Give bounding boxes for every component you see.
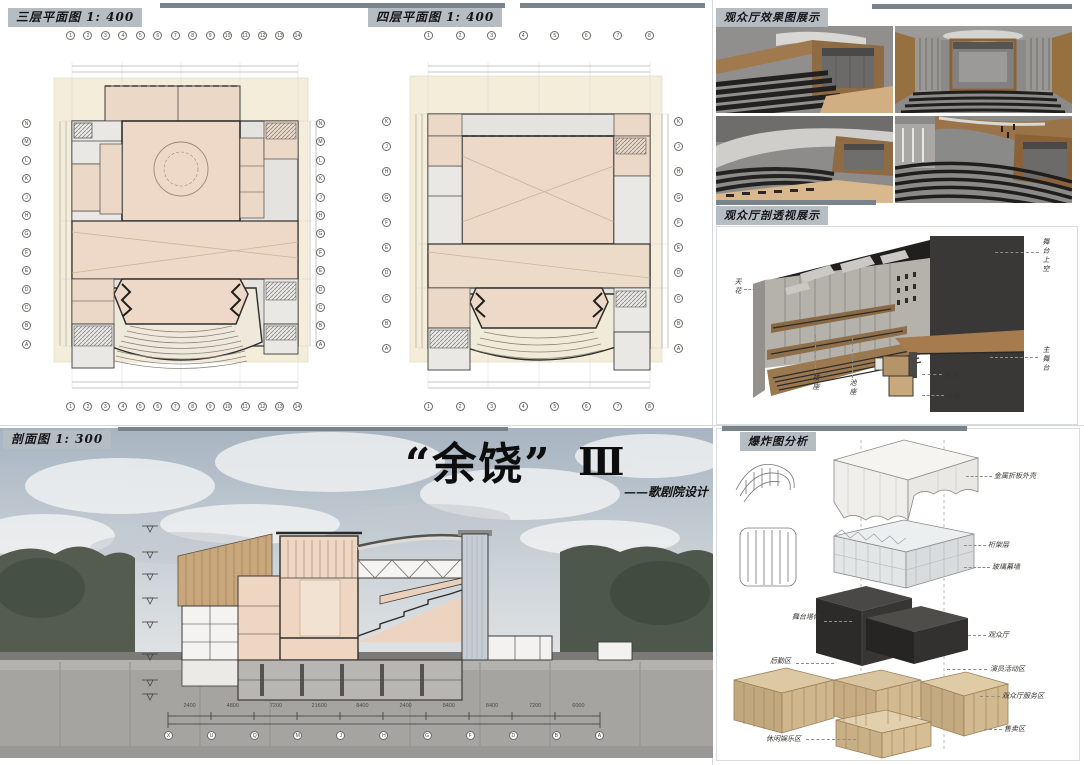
grid-bubble: 3 [101, 402, 110, 411]
grid-bubble: C [22, 303, 31, 312]
exploded-label-sales-area: 售卖区 [1004, 724, 1025, 734]
grid-bubble: 1 [66, 31, 75, 40]
leader [852, 338, 853, 378]
shell-sketch [736, 464, 794, 502]
grid-bubble: 11 [241, 402, 250, 411]
grid-bubble: G [22, 229, 31, 238]
grid-bubble: C [382, 294, 391, 303]
grid-bubble: 4 [519, 31, 528, 40]
grid-bubble: B [22, 321, 31, 330]
dimension-value: 8400 [341, 703, 384, 709]
east-annex [488, 636, 552, 660]
section-grid-letters: XUQMJHGFDBA [164, 731, 604, 740]
grid-bubble: 14 [293, 402, 302, 411]
leader [984, 729, 1002, 730]
grid-bubble: 7 [171, 402, 180, 411]
grid-bubble: Q [250, 731, 259, 740]
project-title-block: “余饶” Ⅲ ——歌剧院设计 [405, 428, 710, 502]
grid-bubble: U [207, 731, 216, 740]
grid-bubble: L [316, 156, 325, 165]
fourth-floor-plan-drawing [368, 26, 708, 424]
grid-bubble: 3 [487, 402, 496, 411]
grid-bubble: 13 [275, 402, 284, 411]
leader [922, 395, 944, 396]
plan4-axis-top: 12345678 [424, 31, 654, 40]
grid-bubble: H [316, 211, 325, 220]
section-title: 剖面图 1: 300 [3, 430, 111, 449]
grid-bubble: 1 [66, 402, 75, 411]
plan3-stage [122, 121, 240, 221]
grid-bubble: 6 [153, 31, 162, 40]
plan4-axis-left: KJHGFEDCBA [382, 117, 391, 353]
grid-bubble: D [674, 268, 683, 277]
grid-bubble: B [552, 731, 561, 740]
grid-bubble: D [382, 268, 391, 277]
grid-bubble: B [674, 319, 683, 328]
roof-truss [358, 560, 462, 578]
exploded-header-bar [722, 426, 967, 431]
grid-bubble: F [466, 731, 475, 740]
grid-bubble: 8 [645, 402, 654, 411]
render-view-side [716, 26, 893, 113]
leader [744, 289, 760, 290]
grid-bubble: 14 [293, 31, 302, 40]
grid-bubble: G [316, 229, 325, 238]
grid-bubble: M [22, 137, 31, 146]
grid-bubble: 2 [456, 402, 465, 411]
grid-bubble: 2 [83, 402, 92, 411]
exploded-label-stage-tower: 舞台塔体 [792, 612, 820, 622]
mid-block [238, 576, 280, 660]
plan4-title: 四层平面图 1: 400 [368, 8, 502, 27]
leader [995, 252, 1039, 253]
grid-bubble: D [22, 285, 31, 294]
grid-bubble: 5 [550, 402, 559, 411]
pit-step [875, 358, 883, 370]
persp-label-fly-space: 舞台上空 [1041, 238, 1051, 274]
grid-bubble: 1 [424, 31, 433, 40]
exploded-label-auditorium: 观众厅 [988, 630, 1009, 640]
grid-bubble: 3 [487, 31, 496, 40]
dark-theatre-volume [816, 586, 968, 666]
dimension-value: 6000 [557, 703, 600, 709]
grid-bubble: A [595, 731, 604, 740]
plan4-left-sliver [428, 136, 462, 244]
leader [947, 669, 987, 670]
grid-bubble: 4 [519, 402, 528, 411]
grid-bubble: J [22, 193, 31, 202]
leader [990, 357, 1038, 358]
grid-bubble: 5 [136, 402, 145, 411]
plan3-axis-bottom: 1234567891011121314 [66, 402, 302, 411]
render-view-balcony [716, 116, 893, 203]
grid-bubble: J [316, 193, 325, 202]
persp-label-orchestra-pit: 乐池 [944, 370, 958, 380]
plan3-rear-stage [72, 221, 298, 279]
grid-bubble: M [316, 137, 325, 146]
plan4-axis-right: KJHGFEDCBA [674, 117, 683, 353]
grid-bubble: H [674, 167, 683, 176]
dimension-value: 7200 [254, 703, 297, 709]
grid-bubble: 13 [275, 31, 284, 40]
side-lighting-slots [897, 272, 916, 305]
project-title: “余饶” [405, 428, 552, 492]
leader [966, 476, 992, 477]
grid-bubble: N [316, 119, 325, 128]
persp-title: 观众厅剖透视展示 [716, 206, 828, 225]
plan4-stage-void [462, 136, 614, 244]
dimension-value: 7200 [514, 703, 557, 709]
grid-bubble: D [316, 285, 325, 294]
leader [806, 739, 856, 740]
grid-bubble: 5 [136, 31, 145, 40]
render-view-front [895, 26, 1072, 113]
dimension-value: 21600 [298, 703, 341, 709]
grid-bubble: 7 [613, 31, 622, 40]
exploded-title: 爆炸图分析 [740, 432, 816, 451]
grid-bubble: 10 [223, 31, 232, 40]
plan4-header-bar [520, 3, 705, 8]
far-east-block [598, 642, 632, 660]
grid-bubble: K [674, 117, 683, 126]
grid-bubble: C [674, 294, 683, 303]
plan3-axis-top: 1234567891011121314 [66, 31, 302, 40]
grid-bubble: 7 [613, 402, 622, 411]
renders-header-bar [872, 4, 1072, 9]
persp-label-ceiling: 天花 [733, 278, 743, 296]
grid-bubble: 2 [456, 31, 465, 40]
plan3-title: 三层平面图 1: 400 [8, 8, 142, 27]
program-volumes [734, 668, 1008, 758]
grid-sketch [740, 528, 796, 586]
grid-bubble: L [22, 156, 31, 165]
leader [824, 621, 852, 622]
grid-bubble: 8 [188, 31, 197, 40]
persp-label-balcony: 楼座 [811, 374, 821, 392]
section-dimensions: 2400480072002160084002400840084007200600… [168, 703, 600, 709]
grid-bubble: 5 [550, 31, 559, 40]
grid-bubble: 8 [645, 31, 654, 40]
grid-bubble: J [336, 731, 345, 740]
dimension-value: 4800 [211, 703, 254, 709]
grid-bubble: J [382, 142, 391, 151]
truss-glass-volume [834, 520, 974, 588]
leader [980, 696, 1000, 697]
grid-bubble: H [382, 167, 391, 176]
grid-bubble: H [379, 731, 388, 740]
grid-bubble: 10 [223, 402, 232, 411]
grid-bubble: N [22, 119, 31, 128]
grid-bubble: G [674, 193, 683, 202]
grid-bubble: E [382, 243, 391, 252]
grid-bubble: F [382, 218, 391, 227]
render-view-wide [895, 116, 1072, 203]
leader [964, 567, 990, 568]
exploded-label-service-area: 观众厅服务区 [1002, 691, 1044, 701]
grid-bubble: A [382, 344, 391, 353]
dimension-value: 8400 [470, 703, 513, 709]
project-subtitle: ——歌剧院设计 [624, 483, 708, 500]
grid-bubble: 12 [258, 31, 267, 40]
grid-bubble: 6 [582, 31, 591, 40]
grid-bubble: B [382, 319, 391, 328]
exploded-label-performer-area: 演员活动区 [990, 664, 1025, 674]
third-floor-plan-drawing [10, 26, 360, 424]
grid-bubble: B [316, 321, 325, 330]
auditorium-section-perspective [745, 232, 1030, 420]
grid-bubble: 11 [241, 31, 250, 40]
grid-bubble: K [382, 117, 391, 126]
grid-bubble: F [22, 248, 31, 257]
grid-bubble: G [423, 731, 432, 740]
persp-label-stalls: 池座 [848, 379, 858, 397]
exploded-label-curtain-wall: 玻璃幕墙 [992, 562, 1020, 572]
exploded-label-leisure: 休闲娱乐区 [766, 734, 801, 744]
grid-bubble: E [22, 266, 31, 275]
grid-bubble: F [674, 218, 683, 227]
auditorium-render-grid [716, 26, 1072, 204]
project-title-numeral: Ⅲ [578, 439, 624, 484]
grid-bubble: 9 [206, 402, 215, 411]
grid-bubble: 12 [258, 402, 267, 411]
grid-bubble: 3 [101, 31, 110, 40]
grid-bubble: E [316, 266, 325, 275]
metal-shell-volume [834, 440, 978, 520]
orchestra-pit-box [883, 356, 909, 376]
dimension-value: 2400 [384, 703, 427, 709]
plan4-mid-band [428, 244, 650, 288]
grid-bubble: 6 [153, 402, 162, 411]
leader [922, 374, 942, 375]
grid-bubble: 9 [206, 31, 215, 40]
grid-bubble: 8 [188, 402, 197, 411]
grid-bubble: 2 [83, 31, 92, 40]
renders-title: 观众厅效果图展示 [716, 8, 828, 27]
leader [796, 663, 834, 664]
leader [968, 635, 986, 636]
persp-header-bar [716, 200, 876, 205]
grid-bubble: A [316, 340, 325, 349]
grid-bubble: 1 [424, 402, 433, 411]
exploded-label-metal-shell: 金属折板外壳 [994, 471, 1036, 481]
grid-bubble: A [674, 344, 683, 353]
grid-bubble: C [316, 303, 325, 312]
dimension-value: 2400 [168, 703, 211, 709]
plan3-axis-left: NMLKJHGFEDCBA [22, 119, 31, 349]
grid-bubble: 6 [582, 402, 591, 411]
presentation-board: { "board": { "main_title": {"display": "… [0, 0, 1084, 765]
grid-bubble: 4 [118, 31, 127, 40]
stage-trap-box [889, 376, 913, 396]
dimension-value: 8400 [427, 703, 470, 709]
grid-bubble: 4 [118, 402, 127, 411]
grid-bubble: F [316, 248, 325, 257]
grid-bubble: 7 [171, 31, 180, 40]
grid-bubble: E [674, 243, 683, 252]
exploded-label-logistics: 后勤区 [770, 656, 791, 666]
glass-tower [462, 534, 488, 660]
persp-label-main-stage: 主舞台 [1041, 346, 1051, 373]
exploded-label-truss: 桁架层 [988, 540, 1009, 550]
persp-label-stage-trap: 台仓 [946, 391, 960, 401]
plan3-axis-right: NMLKJHGFEDCBA [316, 119, 325, 349]
grid-bubble: G [382, 193, 391, 202]
grid-bubble: J [674, 142, 683, 151]
leader [815, 335, 816, 373]
plan4-axis-bottom: 12345678 [424, 402, 654, 411]
grid-bubble: H [22, 211, 31, 220]
grid-bubble: K [22, 174, 31, 183]
grid-bubble: A [22, 340, 31, 349]
grid-bubble: D [509, 731, 518, 740]
grid-bubble: K [316, 174, 325, 183]
grid-bubble: M [293, 731, 302, 740]
grid-bubble: X [164, 731, 173, 740]
leader [964, 545, 986, 546]
